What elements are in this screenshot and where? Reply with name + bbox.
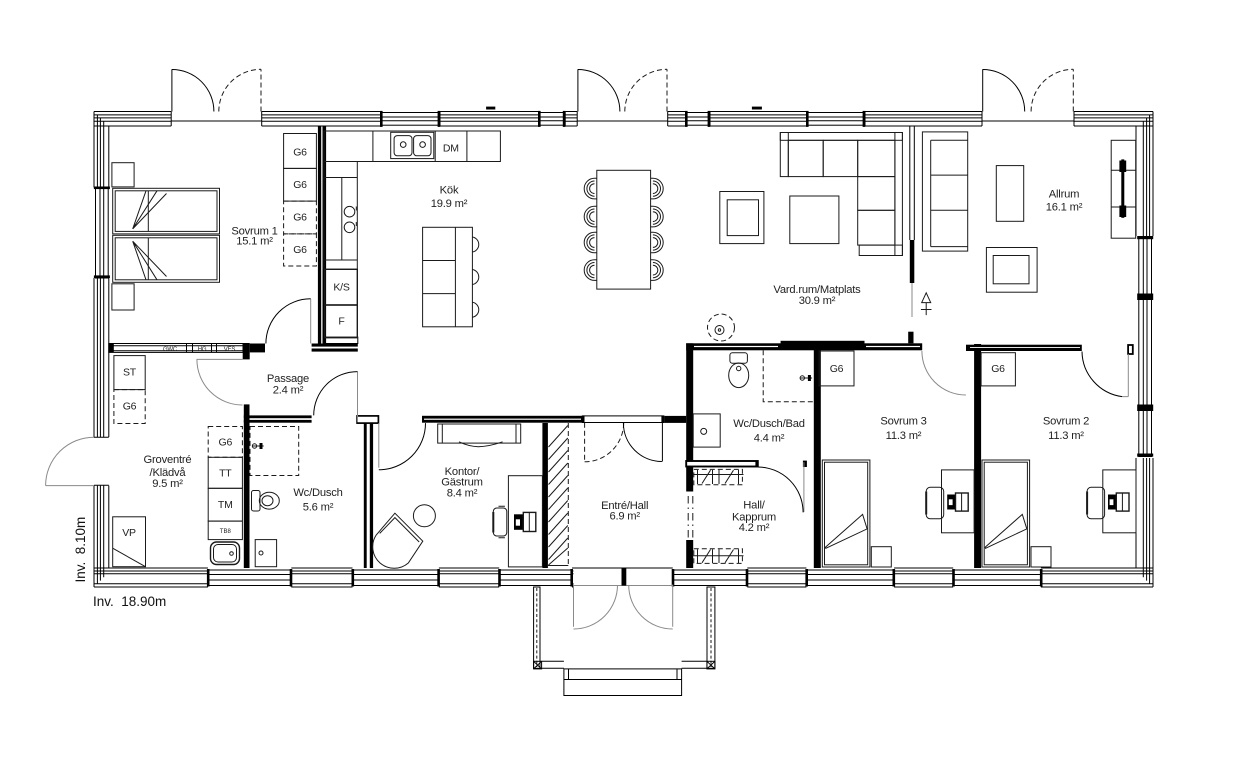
svg-text:Hall/: Hall/	[743, 500, 765, 512]
svg-text:F: F	[338, 316, 344, 328]
svg-text:G6: G6	[293, 147, 307, 159]
svg-text:4.2 m²: 4.2 m²	[739, 522, 770, 534]
svg-text:G6: G6	[293, 212, 307, 224]
svg-text:16.1 m²: 16.1 m²	[1046, 202, 1083, 214]
svg-text:K/S: K/S	[333, 282, 350, 294]
svg-text:DM: DM	[443, 143, 459, 155]
svg-text:Inv. 18.90m: Inv. 18.90m	[93, 594, 166, 609]
svg-text:8.4 m²: 8.4 m²	[447, 488, 478, 500]
svg-text:VES: VES	[224, 347, 236, 353]
svg-text:4.4 m²: 4.4 m²	[754, 433, 785, 445]
svg-text:G6: G6	[991, 363, 1005, 375]
svg-text:Sovrum 2: Sovrum 2	[1043, 416, 1089, 428]
svg-text:11.3 m²: 11.3 m²	[1048, 430, 1084, 442]
svg-text:Groventré: Groventré	[144, 454, 192, 466]
svg-text:9.5 m²: 9.5 m²	[152, 478, 183, 490]
svg-text:G6: G6	[123, 401, 137, 413]
svg-text:30.9 m²: 30.9 m²	[799, 295, 836, 307]
svg-text:19.9 m²: 19.9 m²	[431, 198, 468, 210]
svg-text:Wc/Dusch: Wc/Dusch	[293, 487, 342, 499]
svg-text:G6: G6	[293, 244, 307, 256]
svg-text:Wc/Dusch/Bad: Wc/Dusch/Bad	[733, 418, 805, 430]
svg-text:15.1 m²: 15.1 m²	[236, 236, 273, 248]
svg-text:VP: VP	[122, 527, 136, 539]
svg-text:TB8: TB8	[220, 529, 232, 535]
svg-text:G6: G6	[293, 179, 307, 191]
svg-text:Passage: Passage	[267, 373, 309, 385]
svg-text:G6: G6	[830, 363, 844, 375]
svg-text:Inv. 8.10m: Inv. 8.10m	[73, 517, 88, 583]
svg-text:TM: TM	[218, 499, 233, 511]
svg-text:Sovrum 3: Sovrum 3	[880, 416, 926, 428]
svg-text:HG: HG	[198, 347, 207, 353]
svg-text:G6: G6	[218, 437, 232, 449]
svg-text:Allrum: Allrum	[1049, 189, 1080, 201]
svg-text:6.9 m²: 6.9 m²	[609, 511, 640, 523]
svg-text:11.3 m²: 11.3 m²	[886, 430, 922, 442]
svg-text:GWC: GWC	[163, 347, 178, 353]
svg-text:ST: ST	[123, 367, 137, 379]
svg-text:TT: TT	[219, 468, 232, 480]
svg-text:Kök: Kök	[440, 185, 459, 197]
svg-text:2.4 m²: 2.4 m²	[273, 385, 304, 397]
svg-text:5.6 m²: 5.6 m²	[303, 502, 334, 514]
